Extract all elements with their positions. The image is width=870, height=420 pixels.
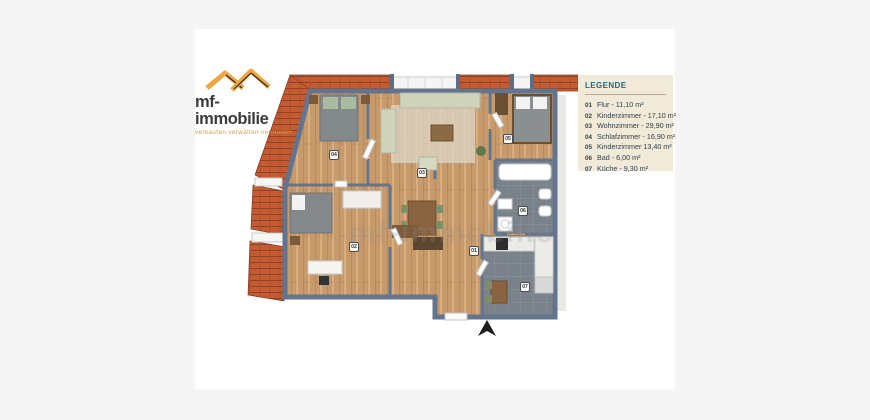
legend-item-number: 04 [585,133,593,143]
room-marker-07: 07 [520,282,530,292]
legend-title: LEGENDE [585,81,666,90]
room-marker-06: 06 [518,206,528,216]
room-marker-05: 05 [503,134,513,144]
room-marker-label: 01 [471,248,477,254]
legend-item: 04 Schlafzimmer - 16,90 m² [585,132,666,143]
legend-item-label: Schlafzimmer - 16,90 m² [597,132,675,142]
logo: mf-immobilie verkaufen verwalten vermiet… [195,67,291,136]
legend-item-number: 01 [585,101,593,111]
logo-name: mf-immobilie [195,94,291,128]
room-marker-label: 05 [505,136,511,142]
legend-item-label: Kinderzimmer 13,40 m² [597,142,672,152]
legend-item-label: Bad - 6,00 m² [597,153,641,163]
room-marker-label: 03 [419,170,425,176]
legend-item-label: Küche - 9,30 m² [597,164,648,174]
page-background: mf-immobilie 01 02 03 04 05 06 07 mf-imm… [0,0,870,420]
legend-divider [585,94,666,95]
legend: LEGENDE 01 Flur - 11,10 m² 02 Kinderzimm… [578,75,673,171]
legend-item-label: Kinderzimmer - 17,10 m² [597,111,676,121]
entrance-arrow-icon [478,320,496,336]
legend-item: 07 Küche - 9,30 m² [585,164,666,175]
legend-item-number: 05 [585,143,593,153]
room-marker-label: 07 [522,284,528,290]
legend-item: 06 Bad - 6,00 m² [585,153,666,164]
legend-item: 05 Kinderzimmer 13,40 m² [585,142,666,153]
content-panel: mf-immobilie 01 02 03 04 05 06 07 mf-imm… [195,29,675,389]
legend-item-number: 06 [585,154,593,164]
room-marker-03: 03 [417,168,427,178]
legend-item-label: Wohnzimmer - 29,90 m² [597,121,674,131]
legend-item: 03 Wohnzimmer - 29,90 m² [585,121,666,132]
room-marker-label: 02 [351,244,357,250]
legend-item-label: Flur - 11,10 m² [597,100,644,110]
legend-item-number: 03 [585,122,593,132]
room-marker-label: 04 [331,152,337,158]
legend-item: 02 Kinderzimmer - 17,10 m² [585,111,666,122]
legend-item-number: 07 [585,165,593,175]
legend-item: 01 Flur - 11,10 m² [585,100,666,111]
room-marker-02: 02 [349,242,359,252]
logo-tagline: verkaufen verwalten vermieten [195,129,291,136]
room-marker-04: 04 [329,150,339,160]
room-marker-label: 06 [520,208,526,214]
logo-roof-icon [205,67,271,93]
legend-item-number: 02 [585,112,593,122]
room-marker-01: 01 [469,246,479,256]
